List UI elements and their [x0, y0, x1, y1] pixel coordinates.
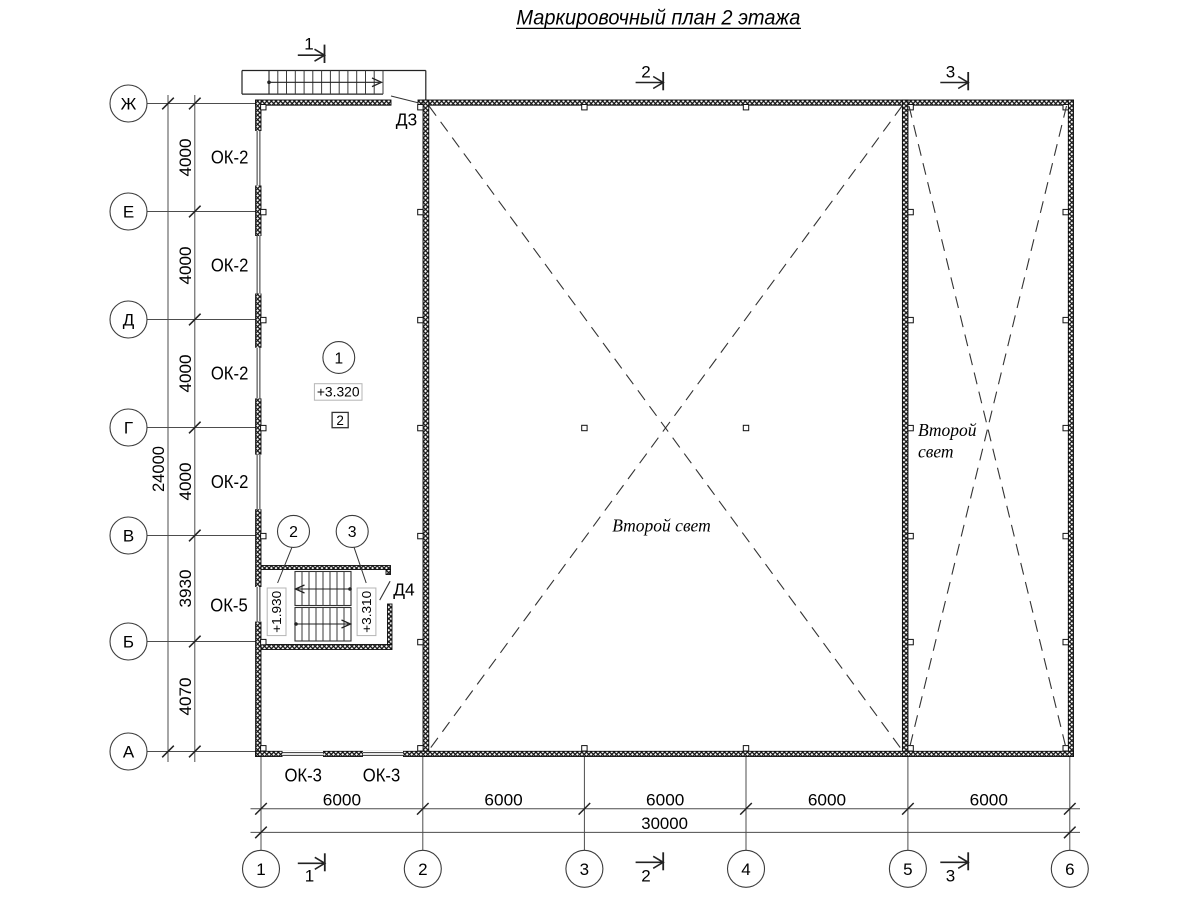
svg-text:2: 2	[289, 524, 298, 541]
svg-text:ОК-2: ОК-2	[211, 255, 249, 275]
svg-text:Е: Е	[123, 202, 134, 221]
svg-text:2: 2	[336, 413, 344, 428]
svg-text:Ж: Ж	[121, 95, 137, 114]
svg-text:Второй свет: Второй свет	[612, 516, 710, 536]
svg-text:4000: 4000	[177, 355, 195, 393]
svg-text:Маркировочный план 2 этажа: Маркировочный план 2 этажа	[516, 7, 800, 30]
svg-text:1: 1	[305, 866, 314, 885]
svg-text:2: 2	[641, 866, 650, 885]
svg-text:30000: 30000	[641, 815, 688, 833]
svg-text:А: А	[123, 743, 135, 762]
svg-text:6: 6	[1065, 860, 1074, 879]
svg-text:4000: 4000	[177, 139, 195, 177]
svg-text:+1.930: +1.930	[269, 591, 284, 633]
svg-text:4: 4	[741, 860, 750, 879]
svg-text:Д: Д	[123, 310, 135, 329]
svg-text:Г: Г	[124, 418, 133, 437]
svg-text:ОК-3: ОК-3	[284, 766, 322, 786]
svg-text:6000: 6000	[808, 792, 846, 810]
svg-text:ОК-2: ОК-2	[211, 147, 249, 167]
svg-text:1: 1	[334, 350, 343, 367]
svg-text:4000: 4000	[177, 463, 195, 501]
svg-text:3: 3	[946, 866, 955, 885]
svg-text:1: 1	[256, 860, 265, 879]
svg-text:Д4: Д4	[393, 580, 415, 600]
svg-text:свет: свет	[918, 442, 954, 462]
svg-text:6000: 6000	[484, 792, 522, 810]
svg-text:4000: 4000	[177, 247, 195, 285]
svg-text:Второй: Второй	[918, 420, 977, 440]
svg-text:2: 2	[641, 62, 650, 81]
svg-text:ОК-2: ОК-2	[211, 472, 249, 492]
svg-text:2: 2	[418, 860, 427, 879]
svg-text:Д3: Д3	[396, 110, 418, 130]
svg-text:ОК-5: ОК-5	[210, 596, 248, 616]
svg-text:4070: 4070	[177, 678, 195, 716]
svg-text:3930: 3930	[177, 570, 195, 608]
svg-text:6000: 6000	[646, 792, 684, 810]
svg-text:3: 3	[946, 62, 955, 81]
svg-text:+3.310: +3.310	[359, 591, 374, 633]
svg-text:3: 3	[580, 860, 589, 879]
svg-text:+3.320: +3.320	[317, 385, 360, 400]
svg-text:Б: Б	[123, 633, 134, 652]
svg-text:5: 5	[903, 860, 912, 879]
svg-text:1: 1	[304, 35, 313, 54]
svg-text:ОК-3: ОК-3	[363, 766, 401, 786]
svg-text:6000: 6000	[970, 792, 1008, 810]
svg-text:6000: 6000	[323, 792, 361, 810]
svg-text:В: В	[123, 527, 134, 546]
svg-text:ОК-2: ОК-2	[211, 363, 249, 383]
svg-text:3: 3	[348, 524, 357, 541]
svg-text:24000: 24000	[150, 446, 168, 492]
